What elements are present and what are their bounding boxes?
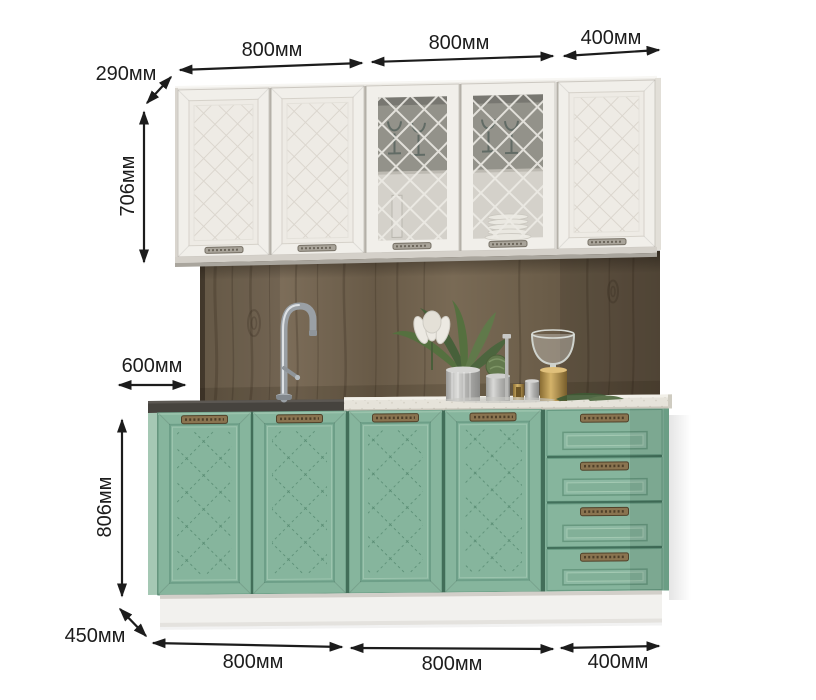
dim-arrow-top-800-2 <box>372 56 553 62</box>
drawer-handle <box>581 414 629 422</box>
serving-tray <box>445 397 555 403</box>
dim-label-top-800-2: 800мм <box>429 32 490 54</box>
base-cabinet-door-2 <box>253 411 346 594</box>
wall-cabinet-glass-door-1 <box>366 84 459 253</box>
wall-cabinet-door-3 <box>558 80 655 249</box>
wall-cabinet-door-2 <box>271 86 364 255</box>
dim-label-base-depth-top: 600мм <box>122 355 183 377</box>
drawer-handle <box>581 462 629 470</box>
dim-label-wall-height: 706мм <box>117 156 139 217</box>
kitchen-dimension-diagram: 800мм 800мм 400мм 290мм 706мм 600мм 806м… <box>0 0 816 700</box>
base-cabinet-door-3 <box>349 410 442 593</box>
drawer-handle <box>581 553 629 561</box>
dim-arrow-top-400 <box>564 50 659 56</box>
plinth <box>160 591 662 630</box>
dim-arrow-bottom-800-2 <box>351 648 553 649</box>
dim-label-top-400: 400мм <box>581 27 642 49</box>
drawer-handle <box>581 507 629 515</box>
dim-arrow-bottom-400 <box>561 646 659 648</box>
dim-arrow-top-800-1 <box>180 63 362 70</box>
dim-label-wall-depth: 290мм <box>96 63 157 85</box>
wall-cabinet-door-1 <box>178 88 269 257</box>
base-right-side-panel <box>664 408 669 590</box>
dim-label-top-800-1: 800мм <box>242 39 303 61</box>
dim-arrow-bottom-800-1 <box>153 643 342 647</box>
base-cabinet-door-1 <box>158 412 251 595</box>
base-left-side-panel <box>148 413 158 595</box>
dim-label-base-height: 806мм <box>94 477 116 538</box>
dim-label-bottom-800-1: 800мм <box>223 651 284 673</box>
dim-label-bottom-800-2: 800мм <box>422 653 483 675</box>
dim-label-base-depth-bottom: 450мм <box>65 625 126 647</box>
plant-pot <box>446 367 480 402</box>
wall-cabinet-glass-door-2 <box>461 82 555 251</box>
base-cabinet-door-4 <box>445 410 541 593</box>
base-cabinets <box>148 394 672 630</box>
wall-cabinets <box>175 76 661 267</box>
dim-label-bottom-400: 400мм <box>588 651 649 673</box>
